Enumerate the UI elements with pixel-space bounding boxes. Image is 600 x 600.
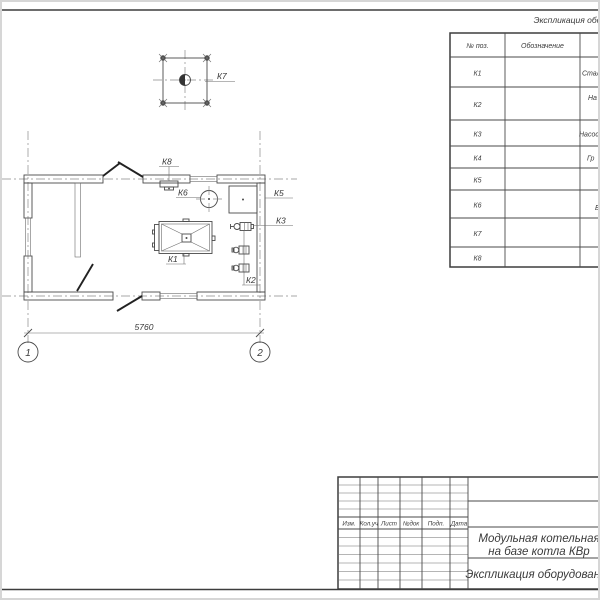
floor-plan: К1 К6 К5 К3 bbox=[2, 131, 297, 362]
partition-wall bbox=[75, 183, 81, 257]
rev-header-ndok: №док bbox=[403, 521, 421, 528]
dimension-5760: 5760 bbox=[24, 322, 264, 337]
label-k6: К6 bbox=[178, 188, 188, 198]
col-header-designation: Обозначение bbox=[521, 42, 564, 50]
drawing-sheet: К7 bbox=[0, 0, 600, 600]
pump-icon bbox=[232, 264, 249, 272]
row-name: Гр bbox=[587, 156, 595, 163]
row-pos: К6 bbox=[473, 203, 481, 210]
axis-bubble-2: 2 bbox=[250, 342, 270, 362]
row-name: Насос bbox=[579, 132, 599, 139]
axis-number: 2 bbox=[256, 348, 263, 359]
equipment-k3-pump: К3 bbox=[231, 216, 294, 231]
k7-detail: К7 bbox=[153, 50, 235, 111]
row-name: На bbox=[588, 95, 597, 102]
equipment-k2-pumps: К2 bbox=[232, 246, 260, 285]
row-pos: К7 bbox=[473, 231, 482, 238]
row-name: Б bbox=[595, 205, 600, 212]
label-k5: К5 bbox=[274, 188, 284, 198]
rev-header-list: Лист bbox=[380, 521, 397, 528]
equipment-k5: К5 bbox=[229, 186, 293, 213]
project-title-line2: на базе котла КВр bbox=[488, 546, 590, 558]
equipment-k1-boiler: К1 bbox=[153, 219, 216, 264]
row-pos: К2 bbox=[473, 102, 481, 109]
label-k7: К7 bbox=[217, 71, 227, 81]
rev-header-izm: Изм. bbox=[342, 521, 355, 528]
door-leaves bbox=[77, 162, 143, 311]
row-name: Стал bbox=[582, 71, 600, 78]
row-pos: К8 bbox=[473, 256, 481, 263]
equipment-spec-table: Экспликация оборудования № поз. Обозначе… bbox=[450, 15, 600, 267]
doc-title: Экспликация оборудования bbox=[465, 569, 600, 581]
equipment-k8: К8 bbox=[159, 157, 179, 191]
axis-bubble-1: 1 bbox=[18, 342, 38, 362]
rev-header-podp: Подп. bbox=[428, 521, 444, 528]
wall-openings bbox=[26, 177, 218, 299]
row-pos: К4 bbox=[473, 156, 481, 163]
label-k2: К2 bbox=[246, 275, 256, 285]
row-pos: К5 bbox=[473, 178, 481, 185]
pump-icon bbox=[232, 246, 249, 254]
axis-number: 1 bbox=[25, 348, 31, 359]
label-k3: К3 bbox=[276, 216, 286, 226]
col-header-pos: № поз. bbox=[466, 43, 488, 50]
label-k1: К1 bbox=[168, 254, 178, 264]
rev-header-data: Дата bbox=[450, 521, 468, 528]
equipment-table-title: Экспликация оборудования bbox=[534, 15, 600, 25]
dimension-text: 5760 bbox=[135, 322, 154, 332]
row-pos: К3 bbox=[473, 132, 481, 139]
label-k8: К8 bbox=[162, 157, 172, 167]
rev-header-koluch: Кол.уч bbox=[360, 521, 379, 528]
title-block: Изм. Кол.уч Лист №док Подп. Дата Модульн… bbox=[338, 477, 600, 589]
project-title-line1: Модульная котельная bbox=[478, 533, 599, 545]
row-pos: К1 bbox=[473, 71, 481, 78]
equipment-k6: К6 bbox=[176, 186, 223, 213]
